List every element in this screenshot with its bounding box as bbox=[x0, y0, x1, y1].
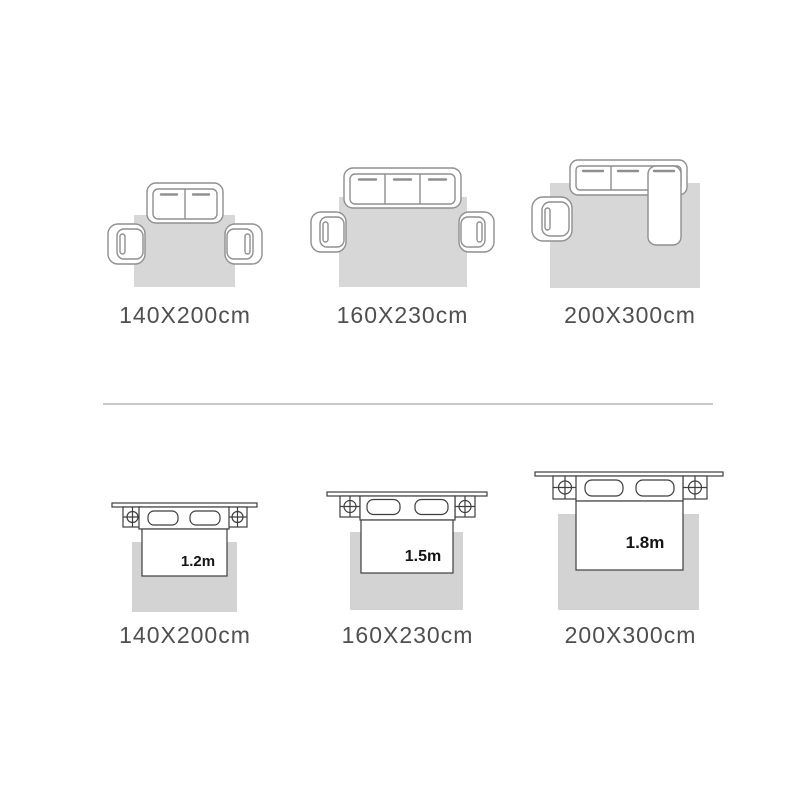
pillow-shape bbox=[636, 480, 674, 496]
rug-size-label: 200X300cm bbox=[528, 620, 733, 650]
rug-size-label: 140X200cm bbox=[100, 300, 270, 330]
bed-width-label: 1.8m bbox=[626, 533, 665, 552]
bed-icon: 1.8m bbox=[528, 465, 733, 613]
pillow-shape bbox=[585, 480, 623, 496]
bed-rug-diagram-200x300: 1.8m bbox=[528, 465, 733, 613]
armchair-left-icon bbox=[311, 212, 346, 252]
armchair-right-icon bbox=[225, 224, 262, 264]
nightstand-right-icon bbox=[228, 507, 247, 527]
armchair-left-icon bbox=[108, 224, 145, 264]
headboard-shape bbox=[327, 492, 487, 496]
rug-size-guide: 140X200cm 160X230cm 200X300cm 1.2m bbox=[0, 0, 800, 800]
mattress-shape bbox=[361, 520, 453, 573]
bed-icon: 1.2m bbox=[105, 498, 265, 616]
sectional-sofa-icon bbox=[520, 150, 740, 295]
sofa-rug-diagram-160x230 bbox=[305, 160, 500, 290]
rug-size-label: 160X230cm bbox=[305, 300, 500, 330]
pillow-shape bbox=[415, 500, 448, 515]
rug-size-label: 160X230cm bbox=[320, 620, 495, 650]
three-seat-sofa-shape bbox=[344, 168, 461, 208]
sofa-rug-diagram-140x200 bbox=[100, 175, 270, 290]
bed-icon: 1.5m bbox=[320, 485, 495, 613]
three-seat-sofa-icon bbox=[305, 160, 500, 290]
bed-rug-diagram-140x200: 1.2m bbox=[105, 498, 265, 616]
nightstand-right-icon bbox=[683, 476, 707, 499]
nightstand-left-icon bbox=[553, 476, 577, 499]
section-divider bbox=[103, 403, 713, 405]
pillow-shape bbox=[190, 511, 220, 525]
pillow-shape bbox=[148, 511, 178, 525]
armchair-right-icon bbox=[459, 212, 494, 252]
rug-shape bbox=[339, 197, 467, 287]
pillow-shape bbox=[367, 500, 400, 515]
sofa-rug-diagram-200x300 bbox=[520, 150, 740, 295]
two-seat-sofa-shape bbox=[147, 183, 223, 223]
bed-width-label: 1.5m bbox=[405, 548, 441, 565]
two-seat-sofa-icon bbox=[100, 175, 270, 290]
chaise-shape bbox=[648, 166, 681, 245]
rug-size-label: 200X300cm bbox=[520, 300, 740, 330]
headboard-shape bbox=[535, 472, 723, 476]
headboard-shape bbox=[112, 503, 257, 507]
rug-shape bbox=[134, 215, 235, 287]
armchair-left-icon bbox=[532, 197, 572, 241]
nightstand-left-icon bbox=[340, 496, 360, 517]
rug-size-label: 140X200cm bbox=[105, 620, 265, 650]
nightstand-right-icon bbox=[455, 496, 475, 517]
bed-width-label: 1.2m bbox=[181, 553, 215, 570]
bed-rug-diagram-160x230: 1.5m bbox=[320, 485, 495, 613]
